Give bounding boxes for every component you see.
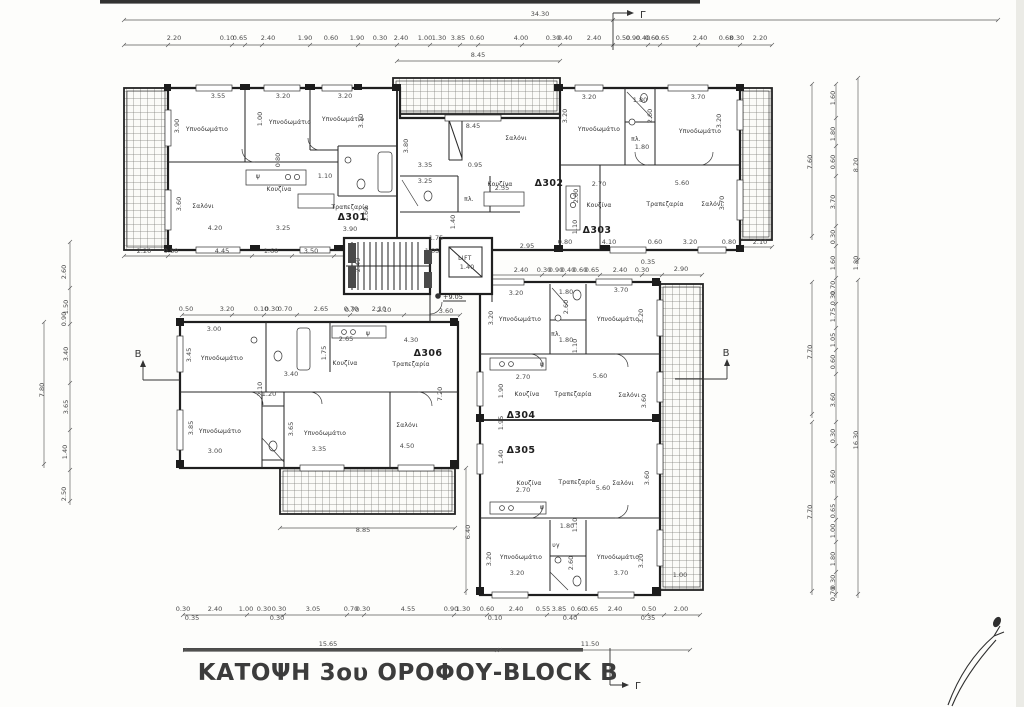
room-label: Υπνοδωμάτιο — [498, 316, 541, 323]
dimension-label: 2.40 — [208, 605, 222, 613]
room-label: Σαλόνι — [505, 135, 527, 142]
apartment-label-d302: Δ302 — [535, 178, 564, 189]
dimension-label: 0.65 — [585, 266, 599, 274]
dimension-label: 1.95 — [497, 416, 505, 430]
room-label: Υπνοδωμάτιο — [185, 126, 228, 133]
dimension-label: 0.30 — [829, 291, 837, 305]
scanned-floor-plan-page: LIFT 34.302.200.100.652.401 — [0, 0, 1024, 707]
dimension-label: 0.80 — [164, 247, 178, 255]
room-label: Υπνοδωμάτιο — [596, 554, 639, 561]
dimension-label: 0.50 — [642, 605, 656, 613]
dimension-label: 3.85 — [451, 34, 465, 42]
room-label: Υπνοδωμάτιο — [499, 554, 542, 561]
dimension-label: 2.95 — [520, 242, 534, 250]
dimension-label: 2.65 — [339, 335, 353, 343]
sink-icon — [345, 157, 351, 163]
dimension-label: 0.30 — [829, 230, 837, 244]
dimension-label: 0.30 — [356, 605, 370, 613]
dimension-label: 3.60 — [640, 394, 648, 408]
dimension-label: 0.30 — [829, 429, 837, 443]
dimension-label: 2.40 — [613, 266, 627, 274]
dimension-label: 2.00 — [572, 189, 580, 203]
window — [657, 372, 663, 402]
dimension-label: 0.80 — [274, 153, 282, 167]
scanner-edge-band — [1016, 0, 1024, 707]
dimension-label: 1.60 — [829, 256, 837, 270]
dimension-label: 3.50 — [304, 247, 318, 255]
balcony-left — [124, 88, 168, 250]
dimension-label: 2.60 — [646, 109, 654, 123]
dimension-label: 3.25 — [418, 177, 432, 185]
window — [492, 592, 528, 598]
dimension-label: 1.10 — [571, 339, 579, 353]
dimension-label: 0.40 — [558, 34, 572, 42]
apartment-label-d306: Δ306 — [414, 348, 443, 359]
room-label: Υπνοδωμάτιο — [198, 428, 241, 435]
dimension-label: 0.60 — [648, 238, 662, 246]
room-label: Υπνοδωμάτιο — [596, 316, 639, 323]
dimension-label: 2.10 — [372, 305, 386, 313]
section-marker-gamma-top-label: Γ — [640, 10, 646, 21]
dimension-label: 1.60 — [829, 91, 837, 105]
window — [657, 300, 663, 336]
dimension-label: 1.80 — [852, 256, 860, 270]
dimension-label: 0.35 — [185, 614, 199, 622]
dimension-label: 1.10 — [571, 518, 579, 532]
dimension-label: 0.30 — [176, 605, 190, 613]
dimension-label: 2.40 — [261, 34, 275, 42]
dimension-label: 3.45 — [185, 348, 193, 362]
dimension-label: 11.50 — [581, 640, 600, 648]
room-label: Σαλόνι — [618, 392, 640, 399]
room-label: πλ. — [464, 196, 474, 203]
dimension-label: 2.70 — [516, 486, 530, 494]
dimension-label: 4.30 — [404, 336, 418, 344]
dimension-label: 0.80 — [558, 238, 572, 246]
dimension-label: 2.60 — [60, 265, 68, 279]
balcony-right-upper — [740, 88, 772, 240]
room-label: Τραπεζαρία — [557, 479, 595, 486]
apartment-label-d303: Δ303 — [583, 225, 612, 236]
dimension-label: 1.40 — [61, 445, 69, 459]
dimension-label: 2.90 — [674, 265, 688, 273]
dimension-label: 0.30 — [272, 605, 286, 613]
dimension-label: 3.65 — [287, 422, 295, 436]
dimension-label: 0.70 — [278, 305, 292, 313]
dimension-label: 3.25 — [276, 224, 290, 232]
balcony-right-lower — [660, 284, 703, 590]
dimension-label: 1.20 — [262, 390, 276, 398]
room-label: υγ — [552, 542, 560, 549]
dimension-label: 3.80 — [402, 139, 410, 153]
dimension-label: 4.20 — [208, 224, 222, 232]
window — [492, 279, 524, 285]
dimension-label: 1.40 — [497, 450, 505, 464]
dimension-label: 0.70 — [344, 305, 358, 313]
dimension-label: 15.65 — [319, 640, 338, 648]
window — [477, 444, 483, 474]
dimension-label: 0.40 — [563, 614, 577, 622]
window — [165, 110, 171, 146]
dimension-label: 0.50 — [179, 305, 193, 313]
window — [165, 190, 171, 230]
dimension-label: 3.90 — [343, 225, 357, 233]
dimension-label: 1.80 — [829, 552, 837, 566]
balcony-top-center — [393, 78, 560, 114]
lower-right-block-outline — [480, 282, 660, 595]
window — [300, 465, 344, 471]
dimension-label: 3.90 — [173, 119, 181, 133]
dimension-label: 1.10 — [318, 172, 332, 180]
dimension-label: 2.40 — [514, 266, 528, 274]
dimension-label: 3.70 — [691, 93, 705, 101]
room-label: ψ — [366, 330, 370, 337]
dimension-label: 5.60 — [675, 179, 689, 187]
dimension-label: 8.85 — [356, 526, 370, 534]
dimension-label: 3.60 — [829, 470, 837, 484]
window — [657, 530, 663, 566]
dimension-label: 3.20 — [338, 92, 352, 100]
dimension-label: 0.65 — [655, 34, 669, 42]
dimension-label: 7.20 — [436, 387, 444, 401]
room-label: Σαλόνι — [192, 203, 214, 210]
room-label: Σαλόνι — [612, 480, 634, 487]
dimension-label: 4.10 — [602, 238, 616, 246]
dimension-label: 0.30 — [635, 266, 649, 274]
dimension-label: 7.70 — [806, 505, 814, 519]
room-label: Τραπεζαρία — [553, 391, 591, 398]
dimension-label: 1.75 — [320, 346, 328, 360]
room-label: Τραπεζαρία — [645, 201, 683, 208]
section-marker-b-right-label: B — [723, 348, 730, 359]
window — [177, 410, 183, 450]
level-marker-value: +9.05 — [443, 293, 463, 301]
dimension-label: 3.65 — [62, 400, 70, 414]
dimension-label: 4.55 — [401, 605, 415, 613]
dimension-label: 1.90 — [497, 384, 505, 398]
dimension-label: 1.10 — [571, 220, 579, 234]
dimension-label: 2.60 — [562, 300, 570, 314]
window — [737, 180, 743, 220]
dimension-label: 0.80 — [722, 238, 736, 246]
scanner-streak-top — [100, 0, 700, 4]
room-label: Κουζίνα — [514, 391, 539, 398]
dimension-label: 1.80 — [633, 96, 647, 104]
dimension-label: 0.60 — [324, 34, 338, 42]
room-label: ψ — [540, 504, 544, 511]
dimension-label: 3.20 — [485, 552, 493, 566]
dimension-label: 3.60 — [643, 471, 651, 485]
drawing-title: ΚΑΤΟΨΗ 3ου ΟΡΟΦΟΥ-BLOCK B — [198, 660, 618, 686]
window — [596, 279, 632, 285]
dimension-label: 0.65 — [829, 504, 837, 518]
dimension-label: 1.80 — [829, 127, 837, 141]
dimension-label: 3.20 — [276, 92, 290, 100]
dimension-label: 0.65 — [233, 34, 247, 42]
section-marker-b-left-label: B — [135, 349, 142, 360]
dimension-label: 3.20 — [510, 569, 524, 577]
dimension-label: 3.60 — [829, 393, 837, 407]
window — [610, 247, 646, 253]
toilet-icon — [573, 576, 581, 586]
apartment-label-d301: Δ301 — [338, 212, 367, 223]
dimension-label: 0.60 — [829, 355, 837, 369]
window — [177, 336, 183, 372]
dimension-label: 0.95 — [468, 161, 482, 169]
dimension-label: 2.70 — [592, 180, 606, 188]
dimension-label: 3.35 — [312, 445, 326, 453]
dimension-label: 0.30 — [730, 34, 744, 42]
dimension-label: 1.05 — [425, 247, 439, 255]
toilet-icon — [573, 290, 581, 300]
sink-icon — [555, 315, 561, 321]
dimension-label: 2.40 — [354, 258, 362, 272]
room-label: ψ — [256, 173, 260, 180]
bathtub-icon — [297, 328, 310, 370]
window — [598, 592, 634, 598]
dimension-label: 2.10 — [753, 238, 767, 246]
window — [322, 85, 352, 91]
apartment-label-d305: Δ305 — [507, 445, 536, 456]
dimension-label: 1.90 — [350, 34, 364, 42]
dimension-label: 1.80 — [559, 288, 573, 296]
dimension-label: 16.30 — [852, 431, 860, 450]
dimension-label: 3.20 — [683, 238, 697, 246]
dimension-label: 3.20 — [582, 93, 596, 101]
sink-icon — [629, 119, 635, 125]
dimension-label: 8.45 — [466, 122, 480, 130]
room-label: Τραπεζαρία — [330, 204, 368, 211]
dimension-label: 2.20 — [167, 34, 181, 42]
section-marker-gamma-bottom-label: Γ — [635, 681, 641, 692]
room-label: Σαλόνι — [701, 201, 723, 208]
balcony-bottom-left — [280, 468, 455, 514]
dimension-label: 1.00 — [829, 524, 837, 538]
dimension-label: 2.40 — [394, 34, 408, 42]
apartment-label-d304: Δ304 — [507, 410, 536, 421]
dimension-label: 0.35 — [641, 258, 655, 266]
dimension-label: 3.05 — [306, 605, 320, 613]
window — [445, 115, 501, 121]
room-label: Υπνοδωμάτιο — [678, 128, 721, 135]
window — [398, 465, 434, 471]
dimension-label: 1.05 — [829, 333, 837, 347]
dimension-label: 2.60 — [567, 556, 575, 570]
dimension-label: 5.60 — [593, 372, 607, 380]
toilet-icon — [274, 351, 282, 361]
dimension-label: 1.30 — [456, 605, 470, 613]
dimension-label: 1.30 — [432, 34, 446, 42]
dimension-label: 3.35 — [418, 161, 432, 169]
dimension-label: 3.40 — [62, 347, 70, 361]
dimension-label: 3.20 — [220, 305, 234, 313]
dimension-label: 0.90 — [60, 312, 68, 326]
window — [737, 100, 743, 130]
dimension-label: 3.70 — [614, 569, 628, 577]
room-label: Υπνοδωμάτιο — [268, 119, 311, 126]
dimension-label: 6.40 — [464, 525, 472, 539]
dimension-label: 2.40 — [509, 605, 523, 613]
dimension-label: 7.80 — [38, 383, 46, 397]
room-label: Τραπεζαρία — [391, 361, 429, 368]
room-label: Σαλόνι — [396, 422, 418, 429]
dimension-label: 0.60 — [480, 605, 494, 613]
floor-plan-drawing: LIFT 34.302.200.100.652.401 — [0, 0, 1024, 707]
room-label: Κουζίνα — [266, 186, 291, 193]
room-label: ψ — [540, 361, 544, 368]
dimension-label: 3.55 — [211, 92, 225, 100]
dimension-label: 3.20 — [715, 114, 723, 128]
dimension-label: 0.55 — [536, 605, 550, 613]
room-label: Υπνοδωμάτιο — [200, 355, 243, 362]
room-label: Υπνοδωμάτιο — [577, 126, 620, 133]
dimension-label: 1.80 — [635, 143, 649, 151]
room-label: Κουζίνα — [516, 480, 541, 487]
dimension-label: 2.65 — [314, 305, 328, 313]
room-label: Υπνοδωμάτιο — [321, 116, 364, 123]
window — [196, 85, 232, 91]
room-label: πλ. — [631, 136, 641, 143]
dimension-label: 0.10 — [488, 614, 502, 622]
window — [698, 247, 726, 253]
dimension-label: 2.50 — [60, 487, 68, 501]
room-label: Κουζίνα — [332, 360, 357, 367]
dimension-label: 4.50 — [400, 442, 414, 450]
toilet-icon — [424, 191, 432, 201]
dimension-label: 0.35 — [641, 614, 655, 622]
stair-pillar — [424, 272, 432, 288]
room-label: πλ. — [551, 331, 561, 338]
dimension-label: 1.75 — [429, 234, 443, 242]
dimension-label: 2.70 — [516, 373, 530, 381]
dimension-label: 7.60 — [806, 155, 814, 169]
dimension-label: 3.85 — [187, 421, 195, 435]
dimension-label: 1.00 — [673, 571, 687, 579]
toilet-icon — [357, 179, 365, 189]
dimension-label: 3.40 — [284, 370, 298, 378]
room-label: Υπνοδωμάτιο — [303, 430, 346, 437]
window — [264, 85, 300, 91]
dimension-label: 7.70 — [806, 345, 814, 359]
dimension-label: 0.30 — [270, 614, 284, 622]
dimension-label: 3.60 — [439, 307, 453, 315]
dimension-label: 3.20 — [487, 311, 495, 325]
dimension-label: 3.85 — [552, 605, 566, 613]
dimension-label: 8.20 — [852, 158, 860, 172]
level-marker-dot — [435, 293, 441, 299]
dimension-label: 4.45 — [215, 247, 229, 255]
window — [575, 85, 603, 91]
dimension-label: 3.00 — [208, 447, 222, 455]
dimension-label: 5.60 — [596, 484, 610, 492]
dimension-label: 2.20 — [137, 247, 151, 255]
dimension-label: 3.20 — [509, 289, 523, 297]
dimension-label: 1.40 — [460, 263, 474, 271]
dimension-label: 2.40 — [587, 34, 601, 42]
sink-icon — [555, 557, 561, 563]
dimension-label: 8.45 — [471, 51, 485, 59]
dimension-label: 2.40 — [608, 605, 622, 613]
dimension-label: 1.00 — [418, 34, 432, 42]
window — [668, 85, 708, 91]
dimension-label: 3.00 — [207, 325, 221, 333]
dimension-label: 0.65 — [584, 605, 598, 613]
dimension-label: 1.90 — [298, 34, 312, 42]
lift-label: LIFT — [458, 256, 472, 262]
kitchen-counter-d304 — [490, 358, 546, 370]
window — [657, 444, 663, 474]
dimension-label: 0.60 — [829, 155, 837, 169]
kitchen-island-d301 — [298, 194, 334, 208]
room-label: Κουζίνα — [487, 181, 512, 188]
dimension-label: 1.00 — [256, 112, 264, 126]
dimension-label: 3.70 — [829, 195, 837, 209]
dimension-label: 1.75 — [829, 308, 837, 322]
dimension-label: 2.00 — [674, 605, 688, 613]
dimension-label: 2.20 — [753, 34, 767, 42]
dimension-label: 0.60 — [470, 34, 484, 42]
window — [477, 372, 483, 406]
dimension-label: 0.30 — [257, 605, 271, 613]
sink-icon — [251, 337, 257, 343]
dimension-label: 0.30 — [373, 34, 387, 42]
dimension-label: 1.60 — [264, 247, 278, 255]
dimension-label: 3.70 — [614, 286, 628, 294]
bathtub-icon — [378, 152, 392, 192]
dimension-label: 4.00 — [514, 34, 528, 42]
dimension-label: 3.60 — [175, 197, 183, 211]
dimension-label: 3.20 — [561, 109, 569, 123]
kitchen-counter-d302 — [484, 192, 524, 206]
dimension-label: 1.00 — [239, 605, 253, 613]
room-label: Κουζίνα — [586, 202, 611, 209]
dimension-label: 1.40 — [449, 215, 457, 229]
kitchen-counter-d305 — [490, 502, 546, 514]
dimension-label: 0.70 — [829, 587, 837, 601]
dimension-label: 2.40 — [693, 34, 707, 42]
dimension-label: 34.30 — [531, 10, 550, 18]
